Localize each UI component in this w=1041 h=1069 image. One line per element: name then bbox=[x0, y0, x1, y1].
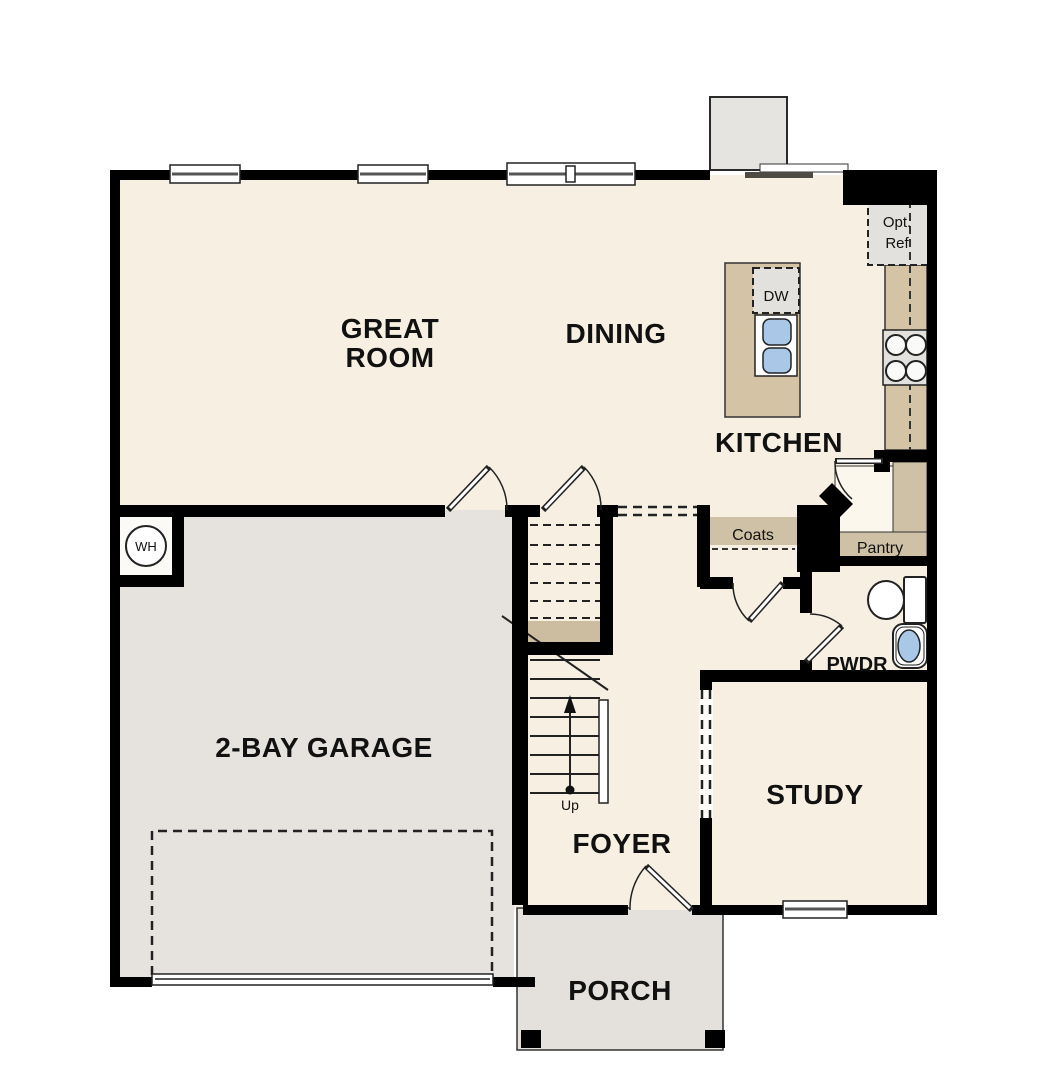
island-sink-basin-bottom bbox=[763, 348, 791, 373]
coats-label: Coats bbox=[732, 527, 774, 544]
fireplace-chase bbox=[710, 97, 787, 170]
wall-right bbox=[927, 198, 937, 915]
toilet-tank-icon bbox=[904, 577, 926, 623]
wall-wh-niche-bottom bbox=[110, 575, 184, 587]
window-mullion bbox=[566, 166, 575, 182]
wall-top bbox=[635, 170, 710, 180]
wall-bottom bbox=[523, 905, 628, 915]
dishwasher-label: DW bbox=[764, 288, 790, 305]
pantry-label: Pantry bbox=[857, 540, 903, 557]
burner-icon bbox=[906, 335, 926, 355]
dining-label: DINING bbox=[566, 318, 667, 349]
wall-coats-left bbox=[697, 517, 710, 587]
stairs-up-label: Up bbox=[561, 797, 579, 813]
wall-wh-niche-right bbox=[172, 505, 184, 587]
water-heater-label: WH bbox=[135, 539, 157, 554]
opt-ref-label-line2: Ref bbox=[885, 235, 909, 252]
wall-pwdr-left-upper bbox=[800, 556, 812, 613]
wall-garage-bottom bbox=[493, 977, 535, 987]
island-sink-basin-top bbox=[763, 319, 791, 345]
wall-bottom bbox=[692, 905, 783, 915]
floor-plan-canvas: GREAT ROOM DINING KITCHEN 2-BAY GARAGE F… bbox=[0, 0, 1041, 1069]
wall-coats-jamb-left bbox=[700, 577, 733, 589]
stair-up-arrow-origin-dot bbox=[566, 786, 575, 795]
wall-under-landing bbox=[528, 642, 605, 655]
porch-post-left bbox=[521, 1030, 541, 1048]
optional-refrigerator-box bbox=[868, 197, 930, 265]
burner-icon bbox=[886, 335, 906, 355]
wall-stair-right bbox=[600, 505, 613, 655]
wall-greatroom-divider bbox=[110, 505, 445, 517]
wall-study-left-upper bbox=[700, 670, 712, 690]
foyer-label: FOYER bbox=[573, 828, 672, 859]
powder-sink-basin bbox=[898, 630, 920, 662]
burner-icon bbox=[906, 361, 926, 381]
wall-garage-bottom bbox=[110, 977, 152, 987]
kitchen-label: KITCHEN bbox=[715, 427, 843, 458]
great-room-label-line2: ROOM bbox=[345, 342, 434, 373]
wall-study-left-lower bbox=[700, 818, 712, 905]
fireplace-hearth-bar bbox=[760, 164, 848, 172]
wall-greatroom-divider bbox=[697, 505, 710, 517]
wall-study-top bbox=[705, 670, 937, 682]
powder-room-label: PWDR bbox=[826, 654, 888, 676]
wall-garage-foyer bbox=[512, 505, 528, 905]
toilet-bowl-icon bbox=[868, 581, 904, 619]
porch-post-right bbox=[705, 1030, 725, 1048]
study-label: STUDY bbox=[766, 779, 863, 810]
great-room-label-line1: GREAT bbox=[341, 313, 439, 344]
opt-ref-label-line1: Opt. bbox=[883, 214, 911, 231]
wall-pwdr-top bbox=[806, 556, 927, 566]
wall-top bbox=[240, 170, 358, 180]
wall-top bbox=[428, 170, 507, 180]
garage-label: 2-BAY GARAGE bbox=[215, 732, 433, 763]
stair-landing bbox=[528, 621, 600, 643]
burner-icon bbox=[886, 361, 906, 381]
wall-top-right-block bbox=[843, 170, 937, 205]
wall-bottom bbox=[847, 905, 937, 915]
porch-label: PORCH bbox=[568, 975, 672, 1006]
stair-handrail bbox=[599, 700, 608, 803]
floor-plan-drawing: GREAT ROOM DINING KITCHEN 2-BAY GARAGE F… bbox=[0, 0, 1041, 1069]
fireplace-mantel-bar bbox=[745, 172, 813, 178]
